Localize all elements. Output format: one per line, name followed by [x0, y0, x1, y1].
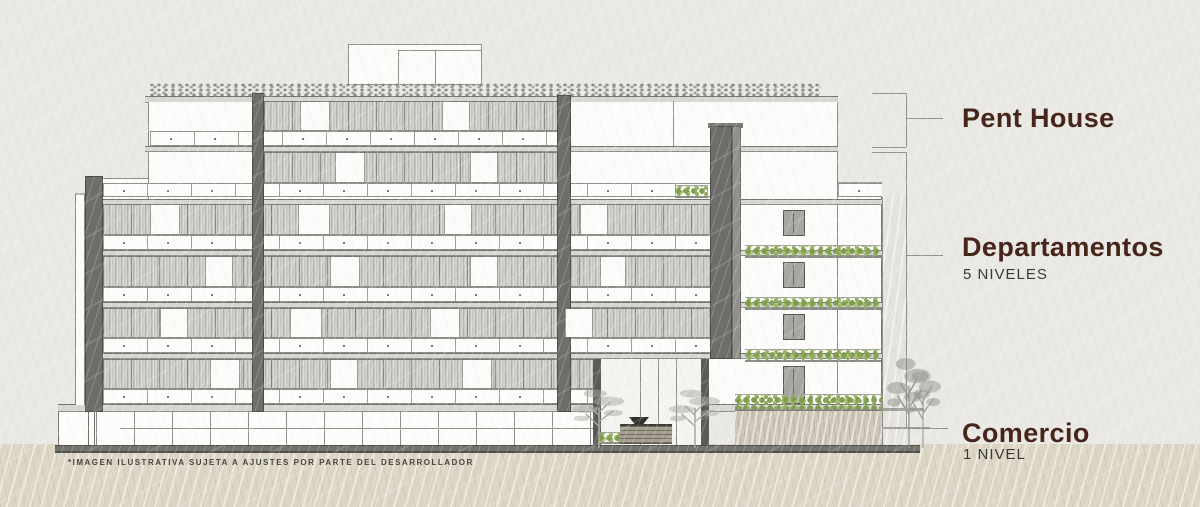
penthouse-label: Pent House: [962, 103, 1115, 134]
core-tower-pillar-side: [732, 126, 741, 359]
balcony-planter: [745, 297, 881, 310]
elevation-rendering: Pent House Departamentos 5 NIVELES Comer…: [0, 0, 1200, 507]
louver-band: [264, 152, 557, 183]
penthouse-leader-line: [906, 118, 943, 119]
structural-pillar: [85, 176, 103, 412]
roof-garden-band: [150, 83, 820, 96]
apartment-door: [783, 262, 805, 288]
louver-band: [103, 204, 710, 235]
balcony-planter: [745, 349, 881, 362]
tree-silhouette: [570, 378, 628, 448]
apartment-door: [783, 210, 805, 236]
balcony-planter: [745, 245, 881, 258]
apartment-door: [783, 314, 805, 340]
wall-joint-line: [673, 101, 674, 146]
stone-podium-wall: [735, 410, 882, 445]
core-tower-pillar: [710, 126, 732, 359]
penthouse-bracket: [872, 147, 906, 148]
balcony-planter: [675, 185, 708, 198]
louver-band: [103, 256, 710, 287]
comercio-leader-line: [908, 428, 948, 429]
departamentos-leader-line: [906, 255, 943, 256]
departamentos-label: Departamentos: [962, 232, 1164, 263]
comercio-label: Comercio: [962, 418, 1090, 449]
penthouse-bracket: [906, 93, 907, 147]
structural-pillar: [252, 93, 264, 412]
balcony-rail: [103, 235, 710, 250]
penthouse-balcony-rail: [150, 131, 557, 146]
comercio-sublabel: 1 NIVEL: [963, 446, 1026, 463]
terrace-planter: [735, 394, 882, 411]
penthouse-bracket: [872, 93, 906, 94]
tree-silhouette: [902, 356, 944, 448]
left-edge-wall: [75, 193, 85, 405]
structural-pillar: [557, 95, 571, 412]
departamentos-bracket: [906, 152, 907, 428]
louver-band: [103, 359, 593, 389]
storefront-transom-line: [120, 428, 593, 429]
louver-band: [103, 308, 710, 338]
parapet-rail: [838, 183, 882, 197]
balcony-rail: [103, 183, 710, 197]
tree-silhouette: [666, 378, 724, 448]
departamentos-bracket: [872, 152, 906, 153]
storefront-door-frame: [88, 412, 95, 445]
penthouse-louver-band: [264, 101, 557, 131]
disclaimer-text: *IMAGEN ILUSTRATIVA SUJETA A AJUSTES POR…: [68, 458, 474, 467]
ground-line: [55, 445, 920, 453]
balcony-rail: [103, 389, 593, 404]
departamentos-sublabel: 5 NIVELES: [963, 266, 1048, 283]
rooftop-structure: [348, 44, 482, 85]
balcony-rail: [103, 338, 710, 353]
balcony-rail: [103, 287, 710, 302]
